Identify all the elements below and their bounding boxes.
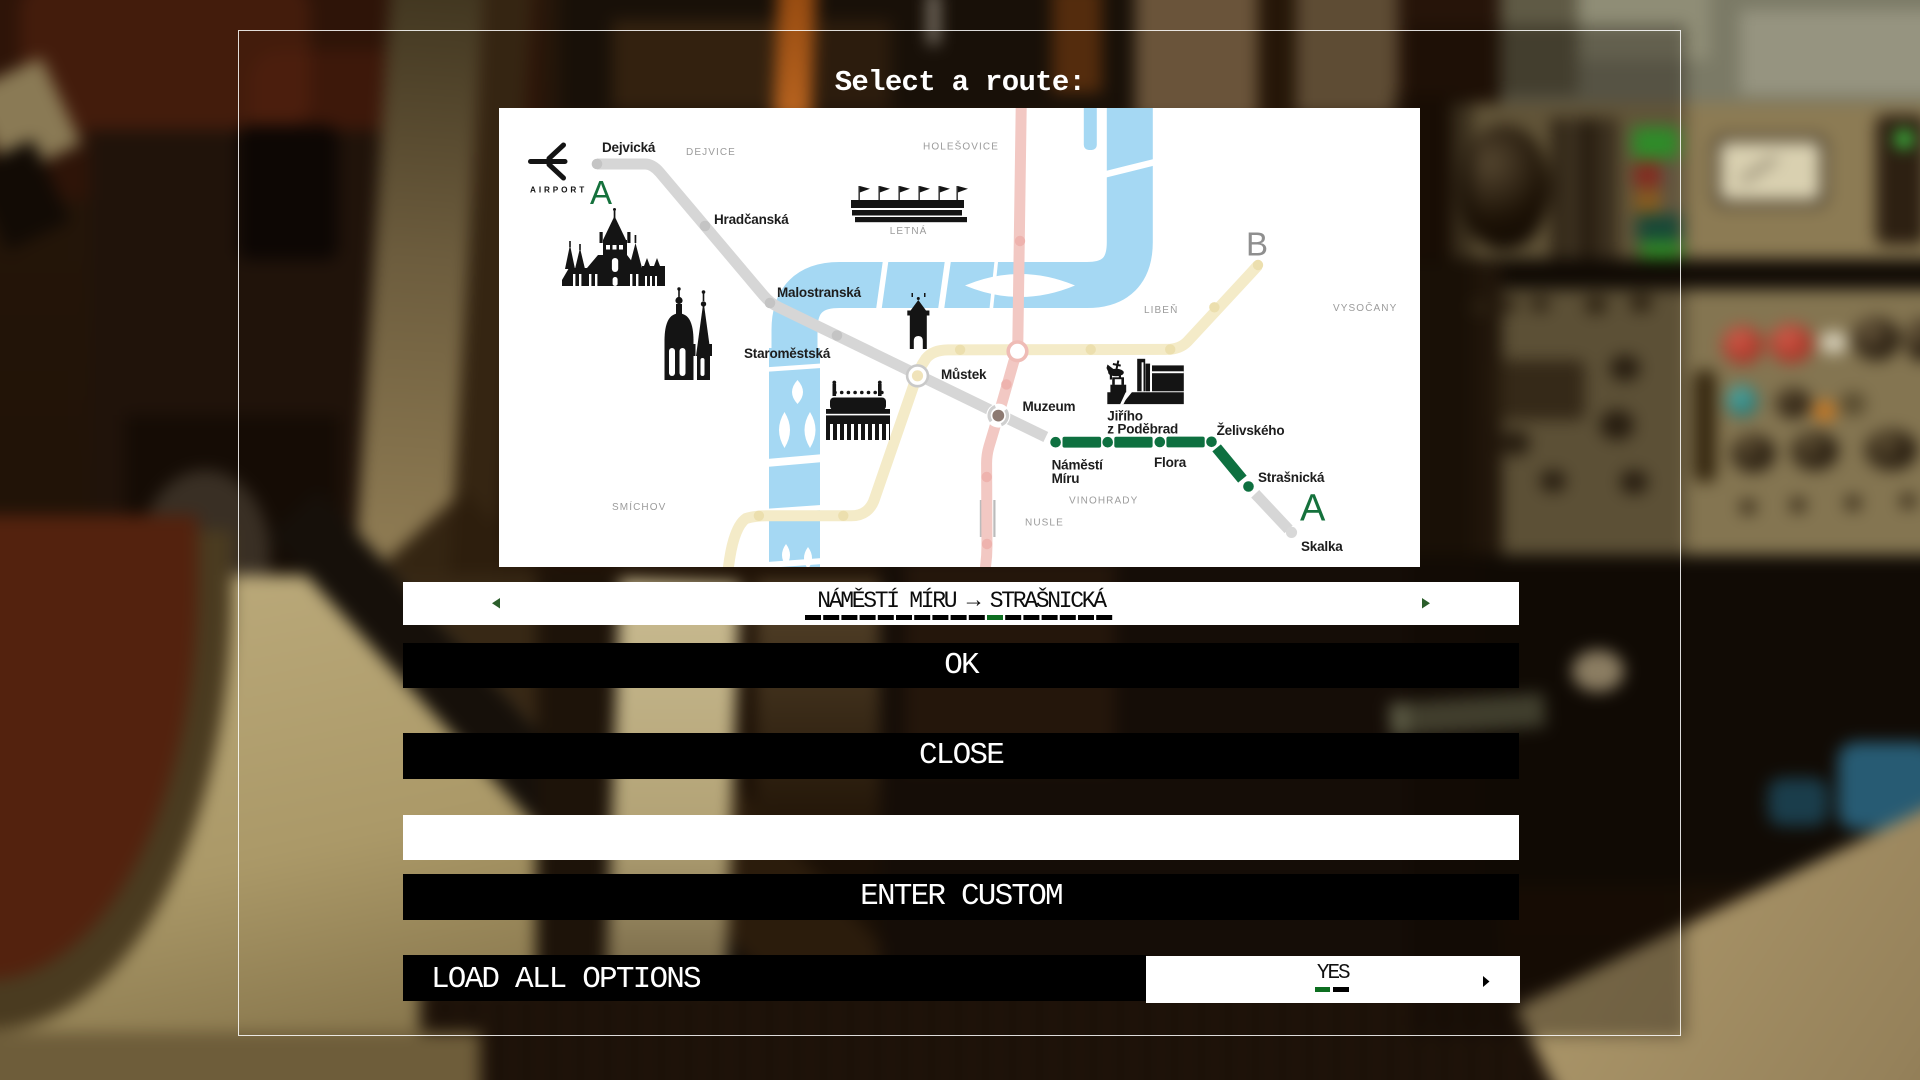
svg-text:A: A [590, 174, 612, 211]
svg-text:LETNÁ: LETNÁ [890, 224, 928, 237]
svg-text:NUSLE: NUSLE [1025, 518, 1064, 529]
svg-text:Flora: Flora [1154, 455, 1187, 470]
svg-text:Dejvická: Dejvická [602, 140, 656, 155]
svg-text:Muzeum: Muzeum [1023, 399, 1076, 414]
svg-text:Staroměstská: Staroměstská [744, 346, 831, 361]
svg-text:HOLEŠOVICE: HOLEŠOVICE [923, 140, 999, 153]
svg-text:Skalka: Skalka [1301, 539, 1343, 554]
svg-text:DEJVICE: DEJVICE [686, 147, 736, 158]
svg-text:VINOHRADY: VINOHRADY [1069, 496, 1138, 507]
svg-text:Míru: Míru [1052, 471, 1080, 486]
svg-text:AIRPORT: AIRPORT [530, 186, 587, 195]
svg-text:Můstek: Můstek [941, 367, 987, 382]
svg-text:VYSOČANY: VYSOČANY [1333, 301, 1397, 314]
svg-text:SMÍCHOV: SMÍCHOV [612, 500, 666, 513]
svg-text:Strašnická: Strašnická [1258, 470, 1325, 485]
svg-text:LIBEŇ: LIBEŇ [1144, 303, 1178, 316]
svg-text:Hradčanská: Hradčanská [714, 212, 789, 227]
svg-text:Malostranská: Malostranská [777, 285, 862, 300]
svg-text:B: B [1246, 226, 1268, 263]
svg-text:z Poděbrad: z Poděbrad [1107, 422, 1178, 437]
svg-text:A: A [1300, 488, 1326, 530]
svg-text:Želivského: Želivského [1217, 423, 1285, 438]
